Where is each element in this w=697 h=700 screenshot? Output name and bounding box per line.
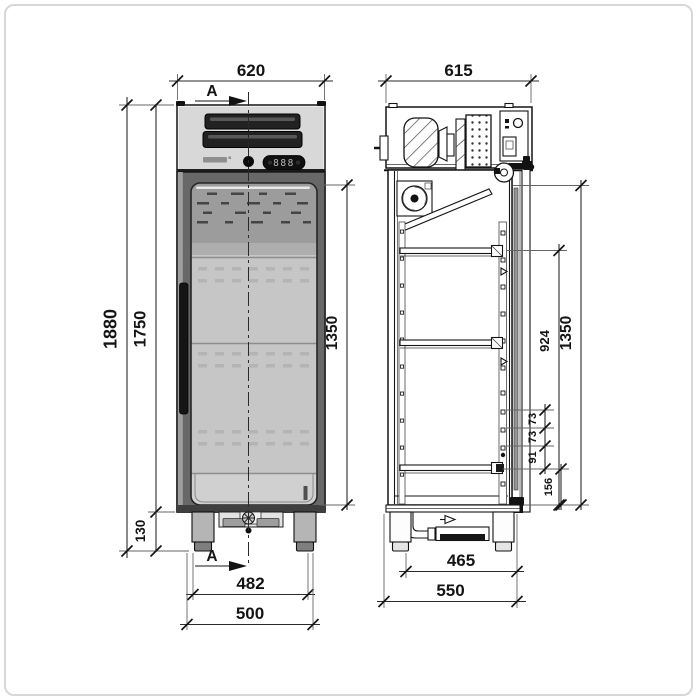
dim-label-1350-front: 1350 <box>324 316 341 350</box>
side-view <box>374 104 534 552</box>
drain-flag-icon <box>445 516 455 524</box>
evaporator-fan <box>397 181 432 216</box>
front-plinth <box>177 505 325 512</box>
side-base <box>386 505 520 551</box>
dim-side-depth: 615 <box>378 61 539 103</box>
compressor-icon <box>404 118 438 167</box>
gasket-corner-mark <box>304 486 308 500</box>
dim-label-550: 550 <box>436 581 464 600</box>
temperature-display[interactable]: 888 <box>263 156 305 170</box>
technical-drawing-canvas: 888 <box>0 0 697 700</box>
dim-label-73-top: 73 <box>527 413 539 425</box>
right-shelf-rail <box>499 222 507 504</box>
dim-label-73-mid: 73 <box>527 431 539 443</box>
dim-label-91: 91 <box>527 451 539 463</box>
section-label-bottom: A <box>206 548 217 565</box>
front-view: 888 <box>176 83 326 571</box>
door-handle[interactable] <box>180 283 189 414</box>
dim-label-1880: 1880 <box>101 309 121 349</box>
section-label-top: A <box>206 83 217 100</box>
front-drain-assembly <box>219 512 283 534</box>
side-machine-compartment <box>374 104 534 171</box>
dim-body-height: 1750 <box>132 100 176 518</box>
drawing-svg: 888 <box>0 0 697 700</box>
dim-label-1350-side: 1350 <box>558 316 575 350</box>
dim-label-620: 620 <box>237 61 265 80</box>
display-digits: 888 <box>273 158 295 169</box>
glass-pane <box>191 183 317 505</box>
display-button-left[interactable] <box>268 161 272 165</box>
dim-label-130: 130 <box>133 520 148 543</box>
left-shelf-rail <box>399 222 405 504</box>
dim-bottom-clearance: 156 <box>543 464 567 511</box>
top-hinge-right-icon <box>317 101 326 106</box>
dim-front-width: 620 <box>169 61 333 100</box>
top-hinge-left-icon <box>176 101 185 106</box>
section-arrowhead-bottom-icon <box>229 561 247 571</box>
condenser-coil-icon <box>466 115 491 167</box>
electrical-box <box>500 111 528 161</box>
dim-label-615: 615 <box>444 61 472 80</box>
dim-leg-height: 130 <box>133 512 162 557</box>
section-arrow-top: A <box>195 83 247 106</box>
front-glass-door[interactable] <box>177 172 325 512</box>
dim-label-924: 924 <box>537 329 552 351</box>
dim-label-465: 465 <box>447 551 475 570</box>
dim-front-base-inner: 482 <box>186 553 315 600</box>
display-button-right[interactable] <box>296 161 300 165</box>
dim-label-1750: 1750 <box>132 311 150 348</box>
dim-label-482: 482 <box>236 574 264 593</box>
dim-label-156: 156 <box>543 478 555 496</box>
brand-logo <box>203 157 231 163</box>
compartment-side-bracket <box>374 136 388 160</box>
dim-label-500: 500 <box>236 604 264 623</box>
